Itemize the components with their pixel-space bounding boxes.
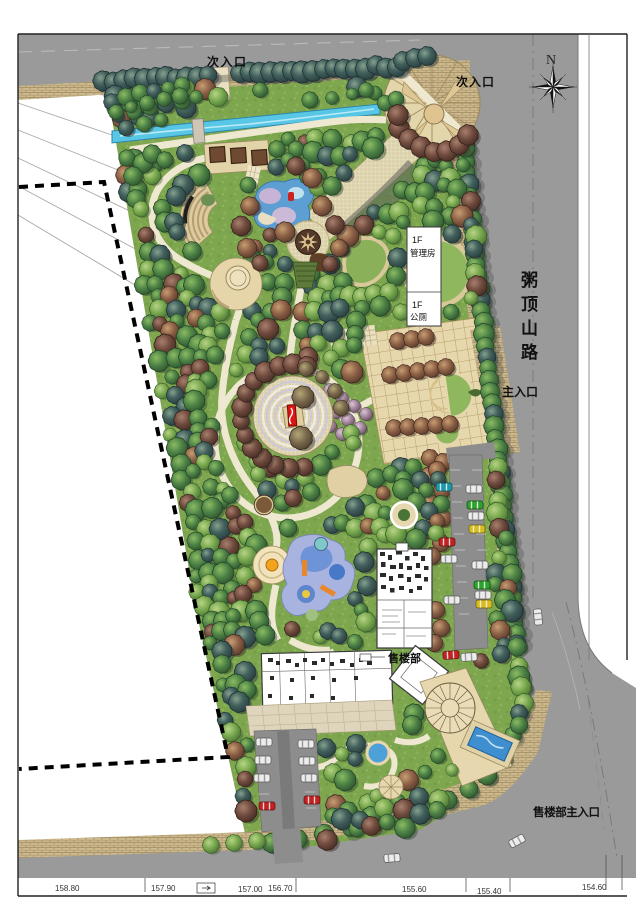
svg-text:157.00: 157.00: [238, 885, 263, 894]
svg-text:157.90: 157.90: [151, 884, 176, 893]
svg-text:公厕: 公厕: [410, 312, 428, 322]
svg-text:155.60: 155.60: [402, 885, 427, 894]
svg-text:售楼部主入口: 售楼部主入口: [532, 805, 600, 819]
svg-text:156.70: 156.70: [268, 884, 293, 893]
svg-text:售楼部: 售楼部: [387, 651, 421, 665]
svg-text:1F: 1F: [412, 235, 423, 245]
svg-text:158.80: 158.80: [55, 884, 80, 893]
svg-text:N: N: [546, 53, 556, 68]
svg-text:154.60: 154.60: [582, 883, 607, 892]
svg-text:155.40: 155.40: [477, 887, 502, 896]
svg-text:管理房: 管理房: [410, 248, 436, 258]
svg-text:山: 山: [521, 319, 538, 338]
svg-text:次入口: 次入口: [456, 74, 495, 89]
svg-text:1F: 1F: [412, 300, 423, 310]
svg-text:粥: 粥: [521, 271, 538, 290]
svg-text:路: 路: [521, 342, 539, 362]
svg-text:次入口: 次入口: [207, 54, 248, 69]
svg-text:主入口: 主入口: [502, 384, 538, 399]
svg-text:顶: 顶: [521, 295, 538, 314]
